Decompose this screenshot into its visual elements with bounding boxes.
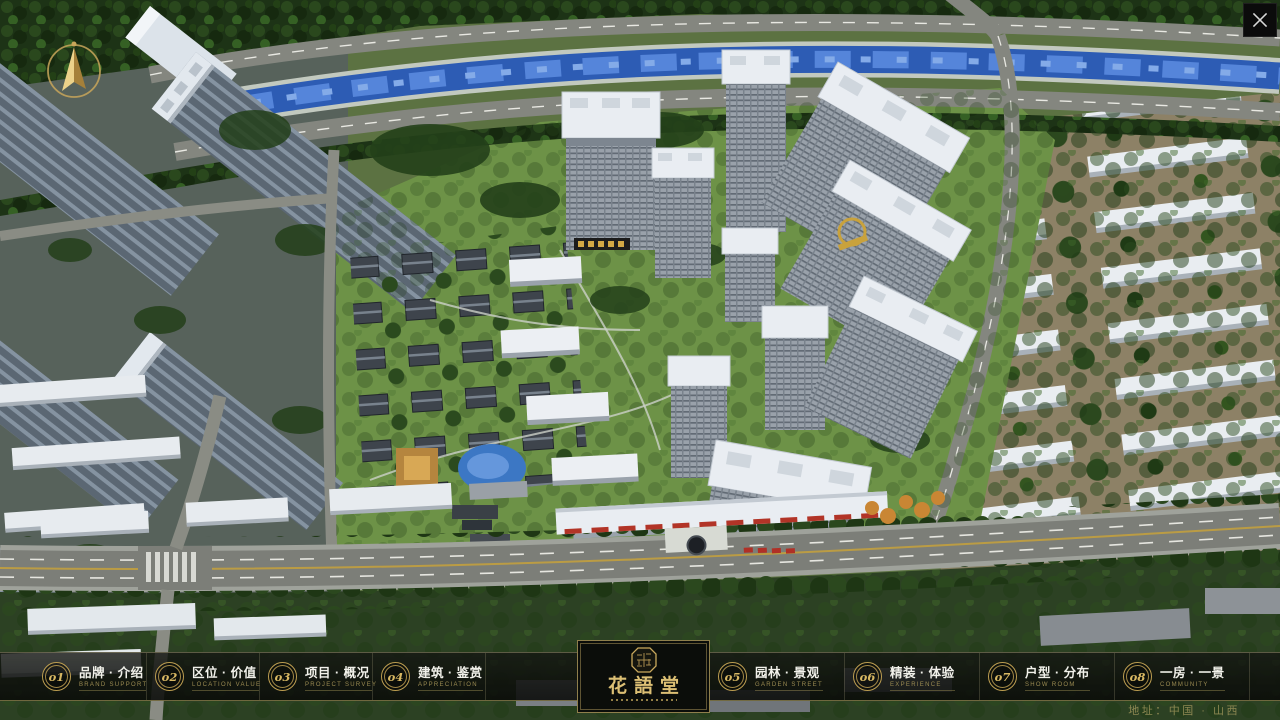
badge-o1-icon: o1 xyxy=(42,662,71,691)
nav-title: 建筑 · 鉴赏 xyxy=(418,662,483,681)
nav-item-brand[interactable]: o1 品牌 · 介绍 BRAND SUPPORT xyxy=(34,653,147,700)
badge-o7-icon: o7 xyxy=(988,662,1017,691)
seal-icon xyxy=(630,646,658,676)
nav-item-interior[interactable]: o6 精装 · 体验 EXPERIENCE xyxy=(845,653,980,700)
close-button[interactable] xyxy=(1243,3,1277,37)
nav-subtitle: EXPERIENCE xyxy=(890,682,955,691)
nav-group-left: o1 品牌 · 介绍 BRAND SUPPORT o2 区位 · 价值 LOCA… xyxy=(34,653,486,700)
gold-entrance xyxy=(574,238,630,250)
nav-title: 项目 · 概况 xyxy=(305,662,372,681)
nav-item-architecture[interactable]: o4 建筑 · 鉴赏 APPRECIATION xyxy=(373,653,486,700)
nav-subtitle: PROJECT SURVEY xyxy=(305,682,372,691)
nav-group-right: o5 园林 · 景观 GARDEN STREET o6 精装 · 体验 EXPE… xyxy=(710,653,1250,700)
project-logo-plaque: 花語堂 xyxy=(577,640,710,713)
address-label: 地址：中国 · 山西 xyxy=(1128,702,1240,718)
nav-title: 品牌 · 介绍 xyxy=(79,662,146,681)
badge-o2-icon: o2 xyxy=(155,662,184,691)
logo-tagline xyxy=(611,699,677,701)
masterplan-render xyxy=(0,0,1280,720)
project-name: 花語堂 xyxy=(608,676,686,696)
nav-title: 一房 · 一景 xyxy=(1160,662,1225,681)
nav-subtitle: APPRECIATION xyxy=(418,682,483,691)
badge-o3-icon: o3 xyxy=(268,662,297,691)
nav-subtitle: SHOW ROOM xyxy=(1025,682,1090,691)
badge-o5-icon: o5 xyxy=(718,662,747,691)
nav-subtitle: GARDEN STREET xyxy=(755,682,823,691)
nav-subtitle: LOCATION VALUE xyxy=(192,682,259,691)
nav-item-views[interactable]: o8 一房 · 一景 COMMUNITY xyxy=(1115,653,1250,700)
nav-subtitle: BRAND SUPPORT xyxy=(79,682,146,691)
nav-title: 区位 · 价值 xyxy=(192,662,259,681)
close-icon xyxy=(1244,3,1276,37)
map-viewport[interactable]: o1 品牌 · 介绍 BRAND SUPPORT o2 区位 · 价值 LOCA… xyxy=(0,0,1280,720)
compass-icon xyxy=(42,34,106,100)
nav-title: 园林 · 景观 xyxy=(755,662,823,681)
nav-item-garden[interactable]: o5 园林 · 景观 GARDEN STREET xyxy=(710,653,845,700)
nav-title: 精装 · 体验 xyxy=(890,662,955,681)
nav-item-floorplans[interactable]: o7 户型 · 分布 SHOW ROOM xyxy=(980,653,1115,700)
nav-subtitle: COMMUNITY xyxy=(1160,682,1225,691)
nav-item-project[interactable]: o3 项目 · 概况 PROJECT SURVEY xyxy=(260,653,373,700)
badge-o8-icon: o8 xyxy=(1123,662,1152,691)
badge-o4-icon: o4 xyxy=(381,662,410,691)
nav-title: 户型 · 分布 xyxy=(1025,662,1090,681)
nav-item-location[interactable]: o2 区位 · 价值 LOCATION VALUE xyxy=(147,653,260,700)
badge-o6-icon: o6 xyxy=(853,662,882,691)
